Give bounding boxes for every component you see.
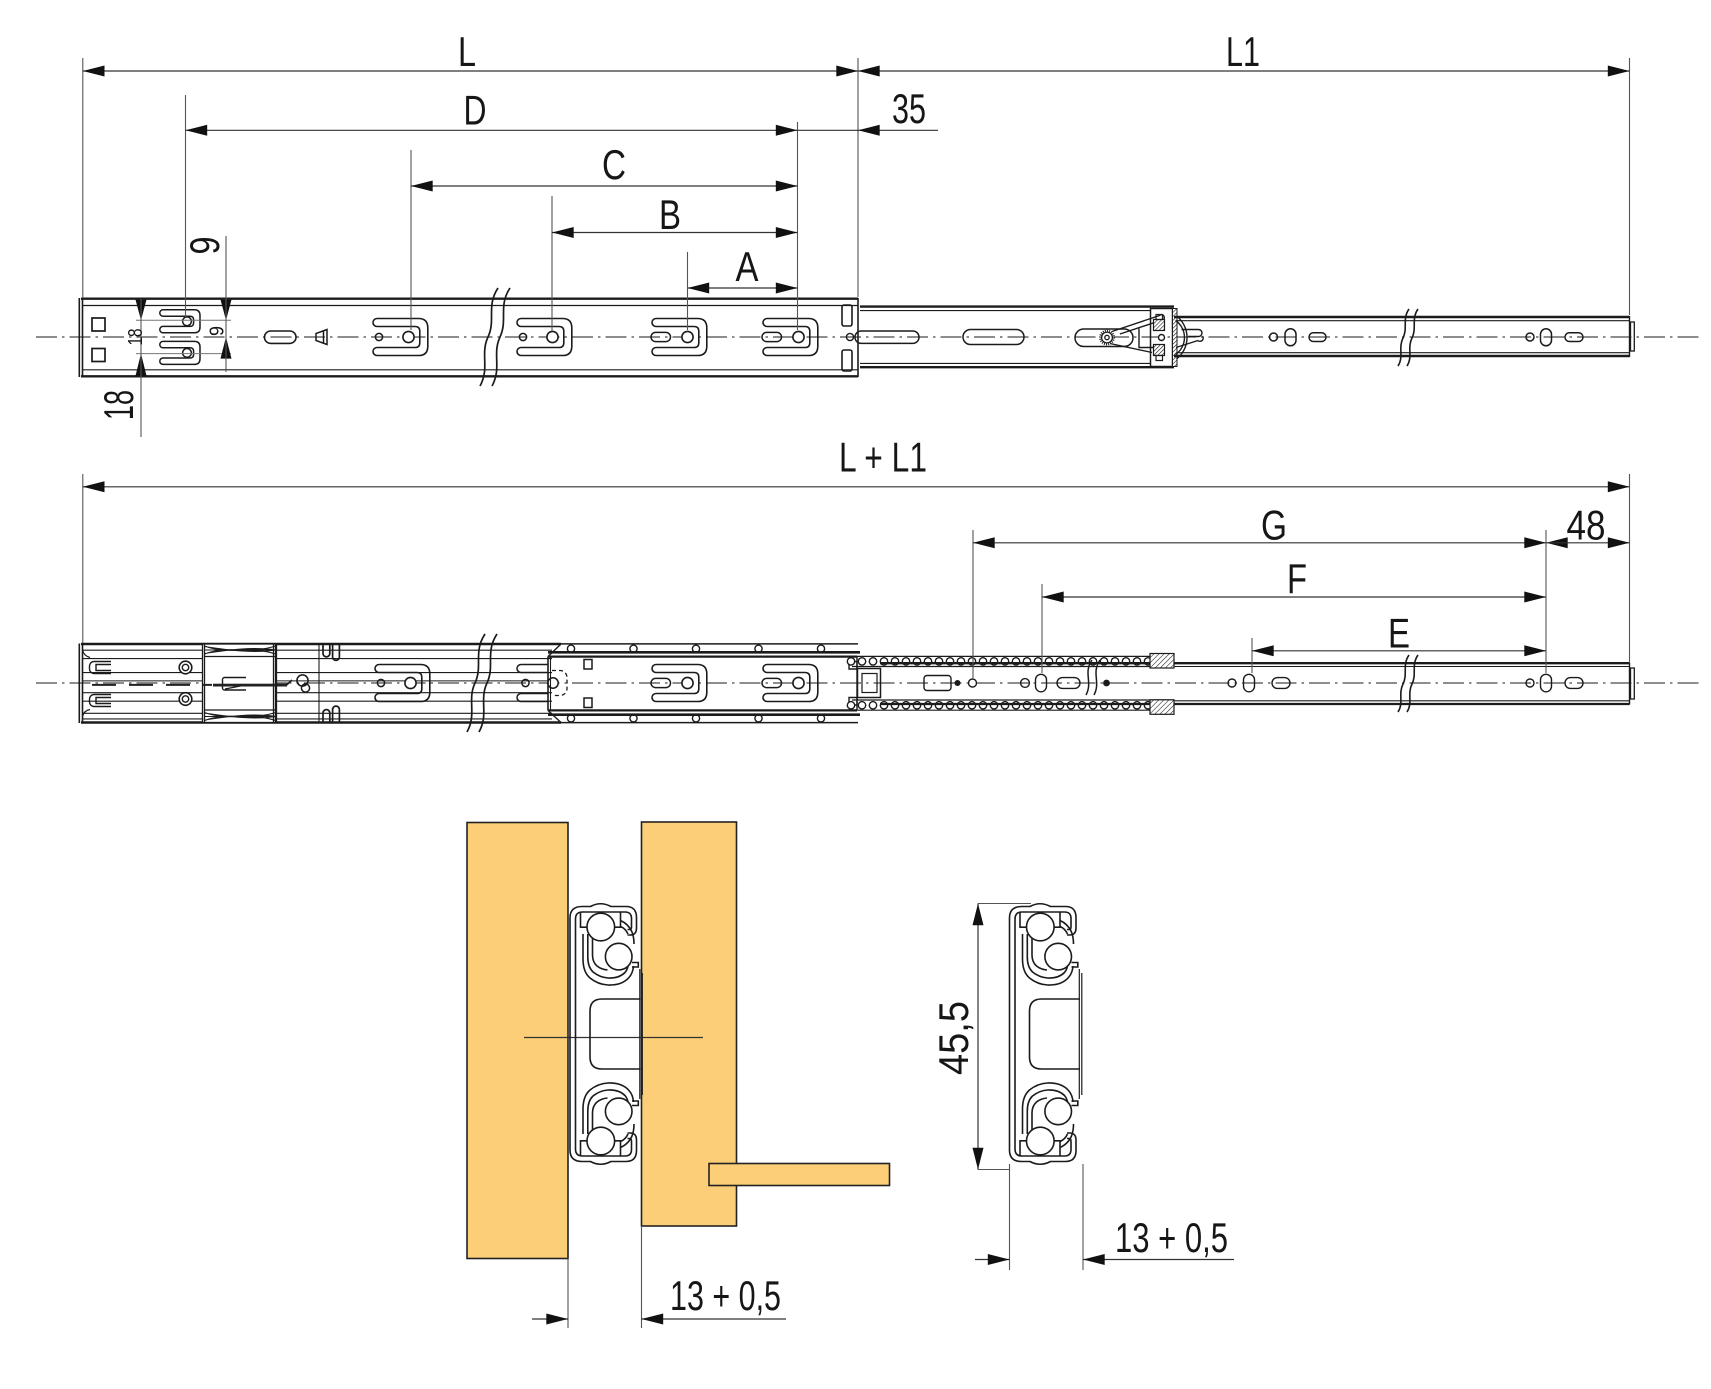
svg-text:48: 48 — [1567, 502, 1606, 549]
svg-text:18: 18 — [95, 390, 142, 420]
svg-text:B: B — [659, 191, 681, 238]
svg-text:18: 18 — [125, 329, 147, 346]
svg-text:45,5: 45,5 — [930, 1001, 977, 1075]
svg-text:13 + 0,5: 13 + 0,5 — [670, 1272, 781, 1319]
svg-text:L1: L1 — [1226, 28, 1260, 75]
svg-text:D: D — [464, 87, 487, 134]
svg-text:F: F — [1287, 555, 1307, 602]
svg-text:G: G — [1261, 502, 1287, 549]
svg-text:9: 9 — [207, 326, 229, 336]
svg-text:L + L1: L + L1 — [839, 434, 927, 481]
svg-text:13 + 0,5: 13 + 0,5 — [1115, 1214, 1228, 1261]
svg-text:E: E — [1388, 610, 1410, 657]
svg-text:9: 9 — [181, 237, 228, 255]
svg-text:35: 35 — [892, 85, 926, 132]
svg-text:L: L — [458, 28, 476, 75]
svg-text:C: C — [602, 141, 626, 188]
svg-text:A: A — [736, 243, 759, 290]
